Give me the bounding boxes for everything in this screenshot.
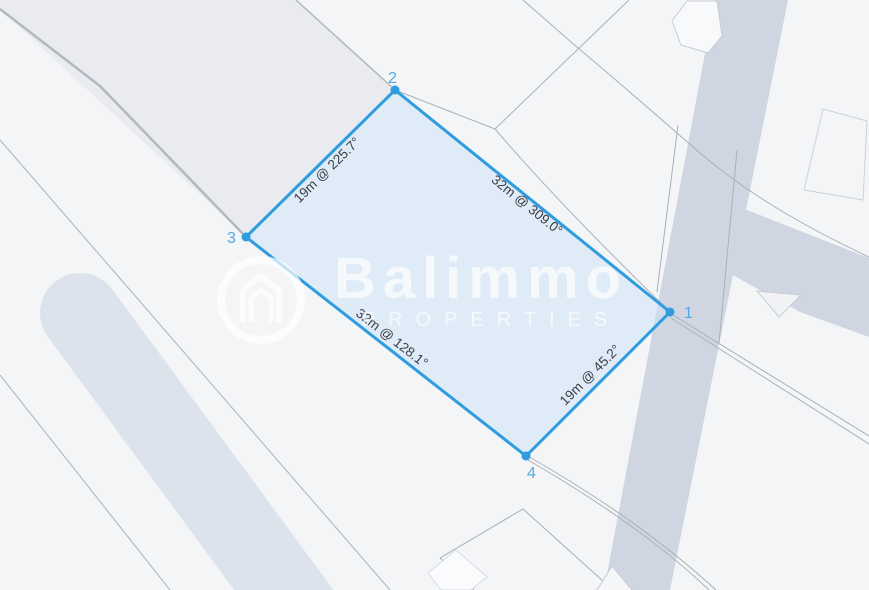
parcel-vertex-4[interactable] [522, 452, 531, 461]
parcel-vertex-label-4: 4 [527, 465, 536, 482]
brand-subtitle: PROPERTIES [362, 309, 621, 331]
map-canvas[interactable]: 1 2 3 4 19m @ 225.7° 32m @ 309.0° 32m @ … [0, 0, 869, 590]
parcel-vertex-1[interactable] [666, 308, 675, 317]
map-viewport[interactable]: 1 2 3 4 19m @ 225.7° 32m @ 309.0° 32m @ … [0, 0, 869, 590]
parcel-vertex-3[interactable] [242, 233, 251, 242]
parcel-vertex-label-2: 2 [388, 70, 397, 87]
brand-name: Balimmo [334, 246, 628, 311]
parcel-vertex-label-1: 1 [684, 305, 693, 322]
parcel-vertex-label-3: 3 [227, 230, 236, 247]
